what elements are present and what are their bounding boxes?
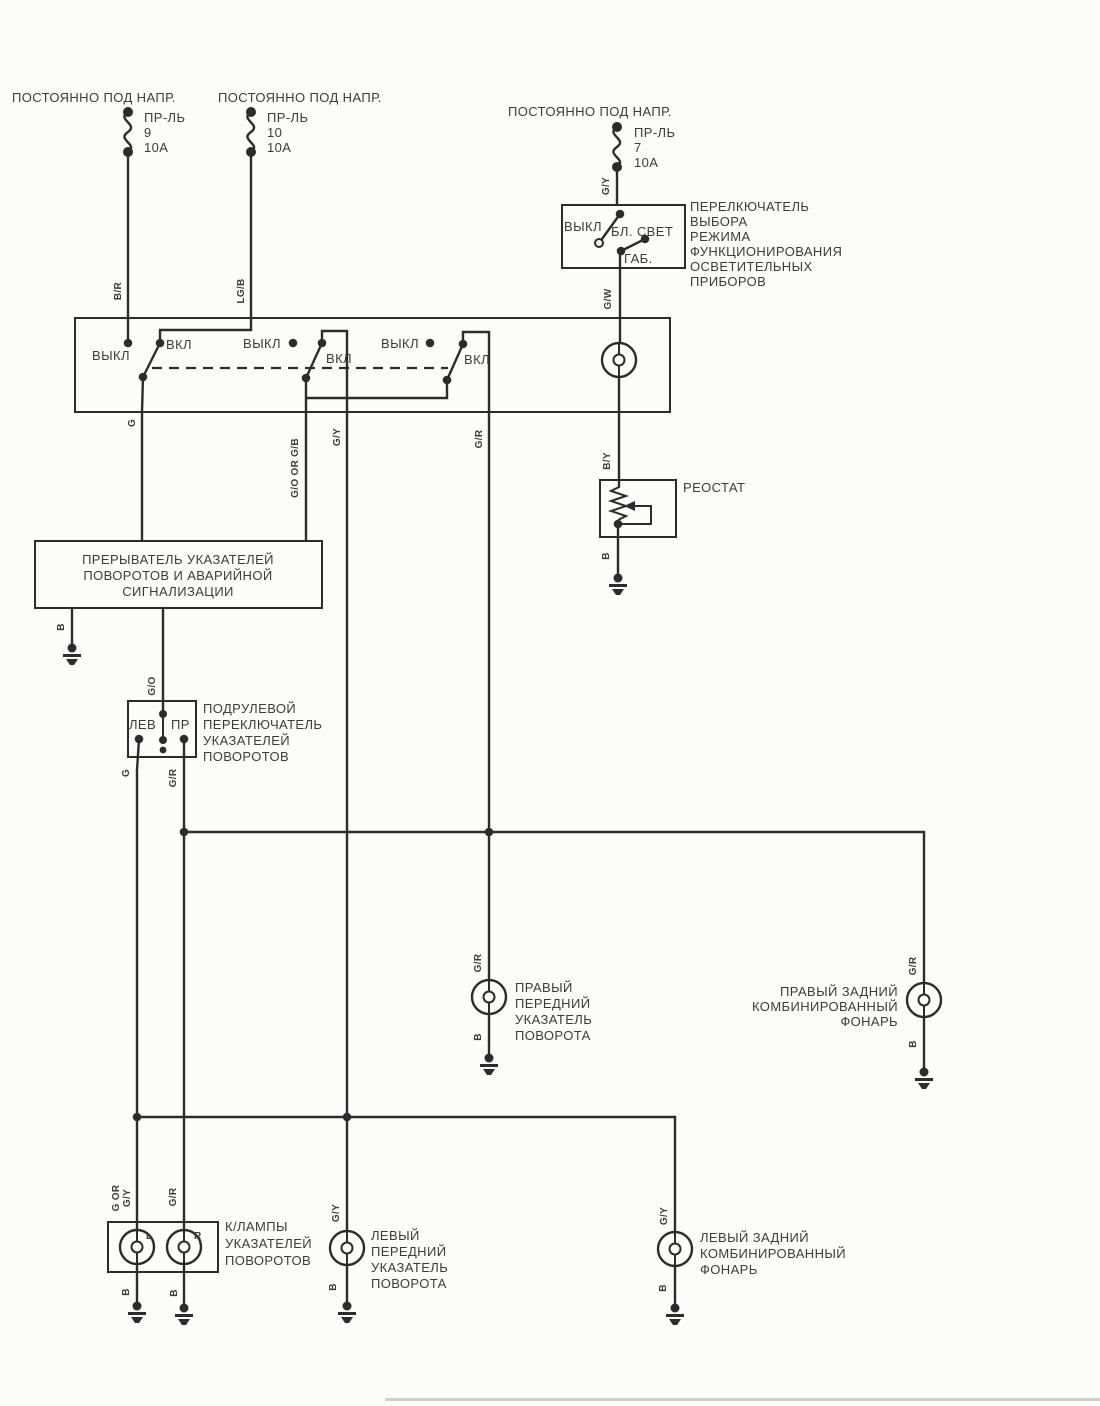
wire-gy-main-label: G/Y — [332, 428, 343, 446]
left-bus-wire — [137, 1117, 675, 1232]
cluster-lamps: G OR G/Y G/R L R B B К/ЛАМПЫ УКАЗАТЕЛЕЙ … — [108, 1184, 312, 1325]
svg-text:ФОНАРЬ: ФОНАРЬ — [840, 1014, 898, 1029]
fuse-10-name: ПР-ЛЬ — [267, 110, 308, 125]
wire-gr-cl-label: G/R — [168, 1187, 179, 1206]
rheostat-box — [600, 480, 676, 537]
flasher-unit: ПРЕРЫВАТЕЛЬ УКАЗАТЕЛЕЙ ПОВОРОТОВ И АВАРИ… — [35, 541, 322, 714]
ground-icon-flasher — [63, 644, 81, 666]
fuse-7-number: 7 — [634, 140, 642, 155]
rheostat-caption: РЕОСТАТ — [683, 480, 745, 495]
wire-g-stalk-label: G — [121, 769, 132, 777]
left-front-lamp-icon — [330, 1231, 364, 1265]
power-feed-1-label: ПОСТОЯННО ПОД НАПР. — [12, 90, 176, 105]
mode-parking-label: ГАБ. — [624, 251, 653, 266]
s1-on-label: ВКЛ — [166, 337, 192, 352]
wire-g-left-branch — [137, 739, 139, 1230]
wiper-arrow-icon — [624, 501, 635, 511]
rheostat: РЕОСТАТ B — [600, 480, 745, 595]
wire-b-cl-l-label: B — [121, 1288, 132, 1296]
ground-icon-cluster-left — [128, 1302, 146, 1324]
fuse-9-number: 9 — [144, 125, 152, 140]
fuse-7-name: ПР-ЛЬ — [634, 125, 675, 140]
wire-gy-top-label: G/Y — [601, 177, 612, 195]
s1-off-label: ВЫКЛ — [92, 348, 130, 363]
wire-gy-cl-label: G/Y — [122, 1189, 133, 1207]
svg-text:УКАЗАТЕЛЕЙ: УКАЗАТЕЛЕЙ — [225, 1236, 312, 1251]
right-bus-wire — [184, 832, 924, 983]
mode-low-beam-label: БЛ. СВЕТ — [611, 224, 673, 239]
ground-icon-left-rear — [666, 1304, 684, 1326]
wire-gr-main-label: G/R — [474, 429, 485, 448]
svg-text:ПЕРЕДНИЙ: ПЕРЕДНИЙ — [371, 1244, 446, 1259]
power-feed-1: ПОСТОЯННО ПОД НАПР. ПР-ЛЬ 9 10А B/R — [12, 90, 185, 343]
mode-off-label: ВЫКЛ — [564, 219, 602, 234]
wire-b-lr-label: B — [658, 1284, 669, 1292]
svg-text:ПОВОРОТА: ПОВОРОТА — [515, 1028, 591, 1043]
left-turn-bus — [133, 1113, 675, 1232]
svg-text:ПРЕРЫВАТЕЛЬ УКАЗАТЕЛЕЙ: ПРЕРЫВАТЕЛЬ УКАЗАТЕЛЕЙ — [82, 552, 274, 567]
svg-text:КОМБИНИРОВАННЫЙ: КОМБИНИРОВАННЫЙ — [752, 999, 898, 1014]
wire-b-cl-r-label: B — [169, 1289, 180, 1297]
wiring-diagram: ПОСТОЯННО ПОД НАПР. ПР-ЛЬ 9 10А B/R ПОСТ… — [0, 0, 1100, 1406]
fuse-10-rating: 10А — [267, 140, 291, 155]
svg-text:ВЫБОРА: ВЫБОРА — [690, 214, 748, 229]
left-rear-lamp-caption: ЛЕВЫЙ ЗАДНИЙ КОМБИНИРОВАННЫЙ ФОНАРЬ — [700, 1230, 846, 1277]
svg-text:ПРАВЫЙ: ПРАВЫЙ — [515, 980, 573, 995]
wire-by-label: B/Y — [602, 452, 613, 470]
svg-text:К/ЛАМПЫ: К/ЛАМПЫ — [225, 1219, 288, 1234]
fuse-10-icon — [246, 107, 256, 157]
stalk-right-label: ПР — [171, 717, 190, 732]
fuse-7-icon — [612, 122, 622, 172]
cluster-caption: К/ЛАМПЫ УКАЗАТЕЛЕЙ ПОВОРОТОВ — [225, 1219, 312, 1268]
wire-g-or-label: G OR — [111, 1184, 122, 1211]
svg-text:ПЕРЕКЛЮЧАТЕЛЬ: ПЕРЕКЛЮЧАТЕЛЬ — [203, 717, 322, 732]
wire-g-label: G — [127, 419, 138, 427]
svg-text:СИГНАЛИЗАЦИИ: СИГНАЛИЗАЦИИ — [122, 584, 234, 599]
svg-text:ПОВОРОТОВ И АВАРИЙНОЙ: ПОВОРОТОВ И АВАРИЙНОЙ — [83, 568, 272, 583]
right-turn-bus — [180, 828, 924, 983]
svg-text:РЕЖИМА: РЕЖИМА — [690, 229, 751, 244]
wire-gr-stalk-label: G/R — [168, 768, 179, 787]
power-feed-2: ПОСТОЯННО ПОД НАПР. ПР-ЛЬ 10 10А LG/B — [160, 90, 382, 343]
left-rear-lamp-icon — [658, 1232, 692, 1266]
wire-gw-label: G/W — [603, 288, 614, 309]
svg-text:ПОДРУЛЕВОЙ: ПОДРУЛЕВОЙ — [203, 701, 296, 716]
ground-icon-right-rear — [915, 1068, 933, 1090]
wire-b-rr-label: B — [908, 1040, 919, 1048]
illumination-lamp-icon — [602, 343, 636, 377]
light-mode-switch-caption: ПЕРЕЛКЮЧАТЕЛЬ ВЫБОРА РЕЖИМА ФУНКЦИОНИРОВ… — [690, 199, 842, 289]
svg-text:ФУНКЦИОНИРОВАНИЯ: ФУНКЦИОНИРОВАНИЯ — [690, 244, 842, 259]
hazard-switch-block: ВЫКЛ ВКЛ ВЫКЛ ВКЛ ВЫКЛ ВКЛ B/Y — [75, 318, 670, 487]
wire-lgb — [160, 152, 251, 343]
svg-text:ПРАВЫЙ ЗАДНИЙ: ПРАВЫЙ ЗАДНИЙ — [780, 984, 898, 999]
power-feed-2-label: ПОСТОЯННО ПОД НАПР. — [218, 90, 382, 105]
wire-gr-rr-label: G/R — [908, 956, 919, 975]
cluster-lamp-l-tag: L — [146, 1231, 152, 1242]
cluster-lamp-r-tag: R — [194, 1231, 202, 1242]
fuse-7-rating: 10А — [634, 155, 658, 170]
svg-text:КОМБИНИРОВАННЫЙ: КОМБИНИРОВАННЫЙ — [700, 1246, 846, 1261]
right-front-lamp-caption: ПРАВЫЙ ПЕРЕДНИЙ УКАЗАТЕЛЬ ПОВОРОТА — [515, 980, 592, 1043]
left-rear-lamp: G/Y B ЛЕВЫЙ ЗАДНИЙ КОМБИНИРОВАННЫЙ ФОНАР… — [658, 1207, 846, 1325]
wire-b-lf-label: B — [328, 1283, 339, 1291]
light-mode-switch: ВЫКЛ БЛ. СВЕТ ГАБ. ПЕРЕЛКЮЧАТЕЛЬ ВЫБОРА … — [562, 199, 842, 343]
s3-on-label: ВКЛ — [464, 352, 490, 367]
wire-br-label: B/R — [113, 281, 124, 300]
fuse-9-name: ПР-ЛЬ — [144, 110, 185, 125]
svg-text:УКАЗАТЕЛЬ: УКАЗАТЕЛЬ — [371, 1260, 448, 1275]
wire-go-or-gb-label: G/O OR G/B — [290, 438, 301, 498]
svg-text:ПОВОРОТОВ: ПОВОРОТОВ — [203, 749, 289, 764]
fuse-9-rating: 10А — [144, 140, 168, 155]
stalk-switch: ЛЕВ ПР ПОДРУЛЕВОЙ ПЕРЕКЛЮЧАТЕЛЬ УКАЗАТЕЛ… — [121, 701, 322, 1230]
resistor-icon — [611, 487, 626, 520]
ground-icon-right-front — [480, 1054, 498, 1076]
wire-lgb-label: LG/B — [236, 278, 247, 303]
svg-text:ПОВОРОТОВ: ПОВОРОТОВ — [225, 1253, 311, 1268]
fuse-9-icon — [123, 107, 133, 157]
fuse-10-number: 10 — [267, 125, 282, 140]
svg-text:ФОНАРЬ: ФОНАРЬ — [700, 1262, 758, 1277]
ground-icon-left-front — [338, 1302, 356, 1324]
s3-common-link — [306, 380, 447, 398]
svg-text:ПОВОРОТА: ПОВОРОТА — [371, 1276, 447, 1291]
wire-b-flasher-label: B — [56, 623, 67, 631]
s3-off-label: ВЫКЛ — [381, 336, 419, 351]
wire-b-rheostat-label: B — [601, 552, 612, 560]
wire-gr-rf-label: G/R — [473, 953, 484, 972]
svg-text:ПЕРЕЛКЮЧАТЕЛЬ: ПЕРЕЛКЮЧАТЕЛЬ — [690, 199, 809, 214]
svg-text:ОСВЕТИТЕЛЬНЫХ: ОСВЕТИТЕЛЬНЫХ — [690, 259, 813, 274]
ground-icon-rheostat — [609, 574, 627, 596]
scan-artifact — [385, 1398, 1100, 1401]
svg-text:ПЕРЕДНИЙ: ПЕРЕДНИЙ — [515, 996, 590, 1011]
wire-b-rf-label: B — [473, 1033, 484, 1041]
svg-text:УКАЗАТЕЛЕЙ: УКАЗАТЕЛЕЙ — [203, 733, 290, 748]
svg-text:ЛЕВЫЙ: ЛЕВЫЙ — [371, 1228, 420, 1243]
stalk-left-label: ЛЕВ — [129, 717, 156, 732]
stalk-switch-caption: ПОДРУЛЕВОЙ ПЕРЕКЛЮЧАТЕЛЬ УКАЗАТЕЛЕЙ ПОВО… — [203, 701, 322, 764]
right-rear-lamp-icon — [907, 983, 941, 1017]
svg-text:УКАЗАТЕЛЬ: УКАЗАТЕЛЬ — [515, 1012, 592, 1027]
s2-off-label: ВЫКЛ — [243, 336, 281, 351]
svg-text:ЛЕВЫЙ ЗАДНИЙ: ЛЕВЫЙ ЗАДНИЙ — [700, 1230, 809, 1245]
right-front-lamp-icon — [472, 980, 506, 1014]
right-rear-lamp: G/R B ПРАВЫЙ ЗАДНИЙ КОМБИНИРОВАННЫЙ ФОНА… — [752, 956, 941, 1089]
svg-text:ПРИБОРОВ: ПРИБОРОВ — [690, 274, 766, 289]
power-feed-3: ПОСТОЯННО ПОД НАПР. ПР-ЛЬ 7 10А G/Y — [508, 104, 675, 205]
power-feed-3-label: ПОСТОЯННО ПОД НАПР. — [508, 104, 672, 119]
ground-icon-cluster-right — [175, 1304, 193, 1326]
right-rear-lamp-caption: ПРАВЫЙ ЗАДНИЙ КОМБИНИРОВАННЫЙ ФОНАРЬ — [752, 984, 898, 1029]
left-front-lamp-caption: ЛЕВЫЙ ПЕРЕДНИЙ УКАЗАТЕЛЬ ПОВОРОТА — [371, 1228, 448, 1291]
wire-go-label: G/O — [147, 676, 158, 695]
main-block-outputs: G G/O OR G/B G/Y G/R — [127, 331, 489, 1231]
wire-gy-lr-label: G/Y — [659, 1207, 670, 1225]
wire-gy-lf-label: G/Y — [331, 1204, 342, 1222]
